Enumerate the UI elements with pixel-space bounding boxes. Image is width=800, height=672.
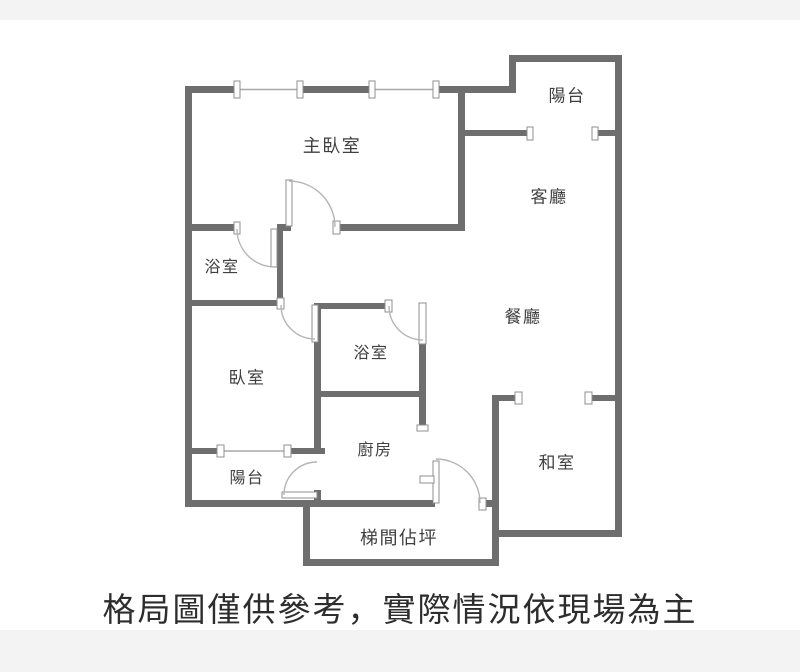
wall-top-a	[185, 86, 237, 93]
wall-bedroom-south-a	[185, 448, 218, 454]
opening-jamb	[515, 392, 522, 404]
wall-masterbr-bottom	[337, 224, 462, 231]
wall-outer-left	[185, 86, 192, 507]
wall-tatami-top-b	[589, 395, 622, 401]
door-leaf-master-bedroom	[286, 180, 292, 226]
door-leaf-bathroom2	[419, 303, 426, 344]
wall-masterbr-living	[458, 86, 465, 231]
wall-balcony-top	[509, 55, 622, 62]
door-arc-balcony-south	[284, 462, 317, 495]
wall-outer-right	[615, 55, 622, 537]
door-jamb	[333, 221, 340, 234]
window-jamb	[369, 81, 375, 98]
sliding-door-jamb	[592, 127, 598, 140]
window-jamb	[297, 81, 303, 98]
door-arc-bathroom2	[389, 306, 423, 340]
wall-entry-stub	[486, 500, 492, 507]
wall-balcony-living-b	[597, 130, 622, 136]
wall-stairwell-bottom	[303, 559, 499, 566]
window-jamb	[433, 81, 439, 98]
floor-plan-canvas	[0, 0, 800, 672]
window-jamb	[234, 81, 240, 98]
sliding-door-jamb	[527, 127, 533, 140]
wall-end-cap	[417, 425, 428, 431]
wall-stairwell-left	[303, 500, 310, 566]
window-jamb	[284, 445, 291, 457]
door-leaf-bedroom	[312, 305, 318, 342]
door-leaf-master-bath	[271, 229, 277, 267]
floorplan-page: 主臥室陽台客廳浴室餐廳浴室臥室廚房和室陽台梯間佔坪 格局圖僅供參考，實際情況依現…	[0, 0, 800, 672]
wall-bedroom-south-b	[289, 448, 325, 454]
door-arc-entry	[436, 459, 480, 503]
wall-balcony-living-a	[458, 130, 529, 136]
door-stop-entry	[420, 476, 434, 483]
wall-tatami-bottom	[492, 530, 622, 537]
door-arc-bedroom	[281, 305, 315, 339]
walls	[185, 55, 622, 566]
wall-mbath-bottom	[185, 300, 280, 306]
disclaimer-caption: 格局圖僅供參考，實際情況依現場為主	[103, 583, 698, 631]
wall-mbath-top	[185, 224, 235, 231]
door-leaf-balcony-south	[282, 492, 317, 498]
wall-tatami-left	[492, 395, 499, 566]
wall-bath2-right	[419, 344, 426, 430]
door-arc-master-bath	[237, 229, 275, 267]
wall-bath2-top	[318, 303, 388, 309]
wall-bath2-bottom	[314, 391, 426, 397]
wall-mbath-right	[277, 224, 283, 306]
wall-top-c	[436, 86, 515, 93]
door-arc-master-bedroom	[289, 181, 335, 227]
wall-tatami-top-a	[492, 395, 518, 401]
window-jambs	[217, 81, 598, 510]
opening-jamb	[585, 392, 592, 404]
window-jamb	[217, 445, 224, 457]
wall-top-b	[300, 86, 372, 93]
